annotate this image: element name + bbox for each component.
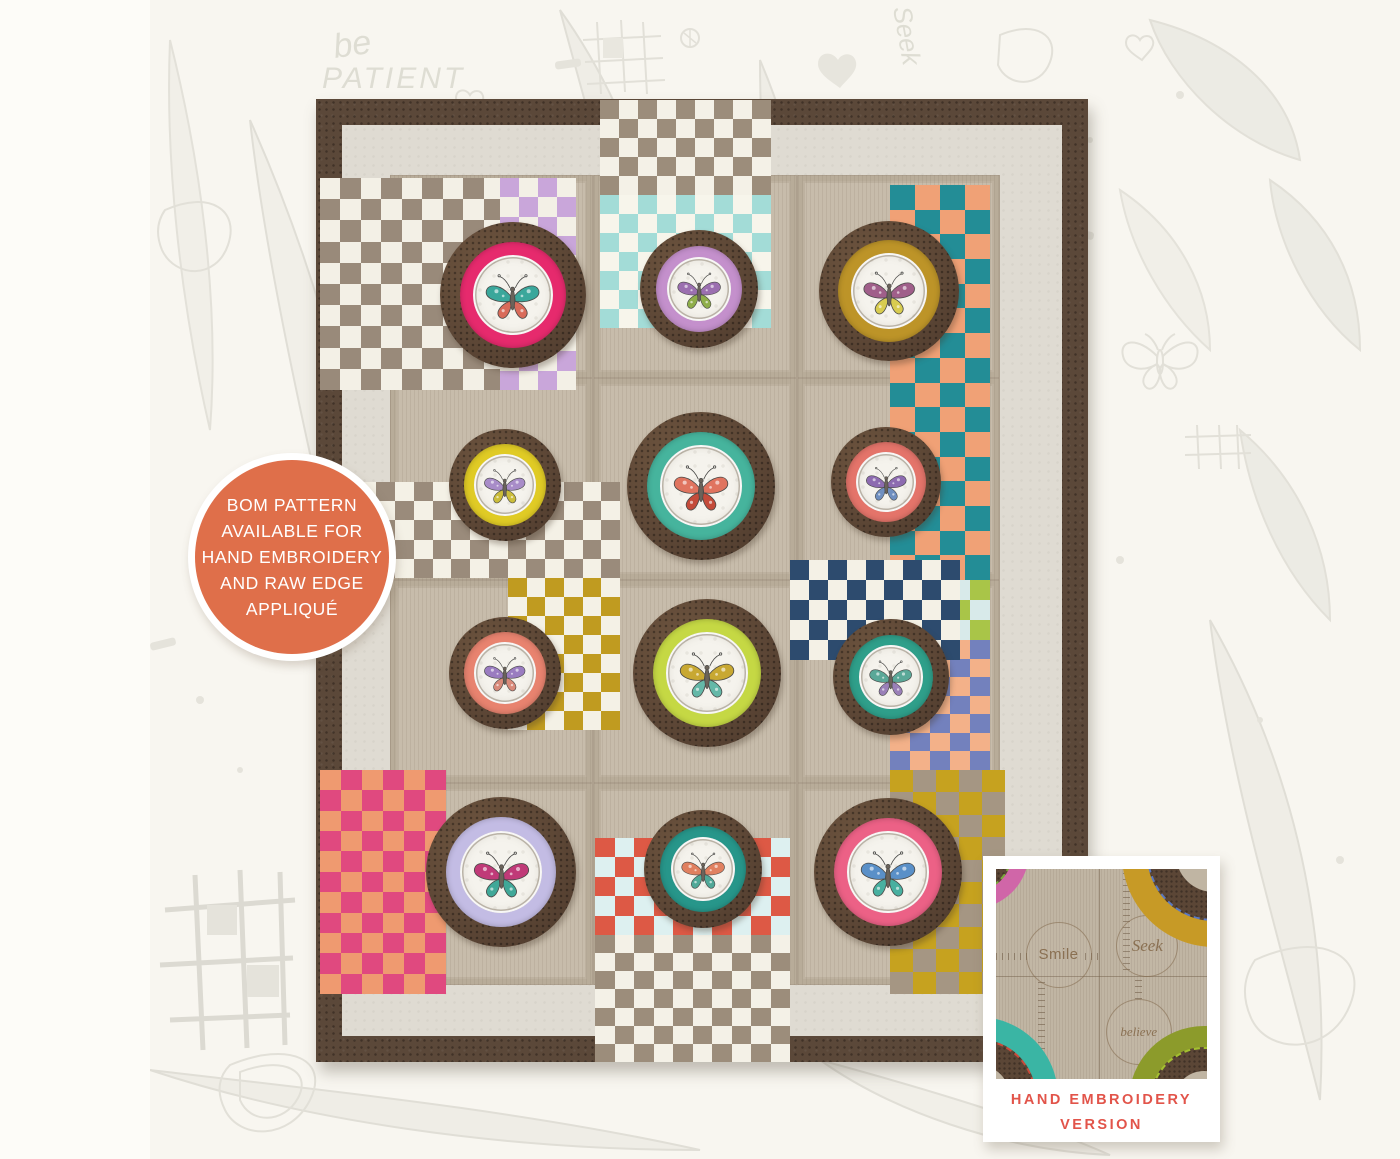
- checker-cell: [950, 659, 970, 678]
- checker-cell: [790, 560, 809, 580]
- checker-cell: [790, 620, 809, 640]
- hoop-center: [671, 837, 736, 902]
- badge-circle: BOM PATTERN AVAILABLE FOR HAND EMBROIDER…: [195, 460, 389, 654]
- checker-cell: [676, 100, 695, 119]
- checker-cell: [381, 369, 401, 390]
- checker-cell: [695, 138, 714, 157]
- checker-cell: [965, 234, 990, 259]
- checker-cell: [693, 989, 713, 1007]
- checker-cell: [557, 351, 576, 370]
- checkerboard-patch: [600, 100, 771, 195]
- checker-cell: [884, 560, 903, 580]
- checker-cell: [638, 195, 657, 214]
- checker-cell: [982, 792, 1005, 814]
- checker-cell: [320, 305, 340, 326]
- checker-cell: [941, 580, 960, 600]
- checker-cell: [545, 711, 564, 730]
- checker-cell: [712, 989, 732, 1007]
- embroidery-hoop-block: [833, 619, 949, 735]
- checker-cell: [615, 877, 635, 896]
- checker-cell: [970, 714, 990, 733]
- checker-cell: [982, 815, 1005, 837]
- hoop-fabric-ring: [464, 632, 546, 714]
- herringbone-stitch: [996, 953, 1028, 960]
- checker-cell: [732, 1026, 752, 1044]
- checker-cell: [320, 831, 341, 851]
- hoop-fabric-ring: [834, 818, 942, 926]
- checker-cell: [425, 974, 446, 994]
- checker-cell: [712, 953, 732, 971]
- checker-cell: [320, 348, 340, 369]
- checker-cell: [657, 214, 676, 233]
- checker-cell: [903, 560, 922, 580]
- seam-line: [996, 976, 1207, 977]
- checker-cell: [340, 284, 360, 305]
- checker-cell: [619, 100, 638, 119]
- checker-cell: [341, 892, 362, 912]
- checker-cell: [600, 271, 619, 290]
- checker-cell: [538, 197, 557, 216]
- checker-cell: [751, 971, 771, 989]
- left-white-strip: [0, 0, 150, 1159]
- checker-cell: [654, 953, 674, 971]
- hoop-center: [473, 255, 553, 335]
- checker-cell: [583, 578, 602, 597]
- checker-cell: [404, 811, 425, 831]
- checker-cell: [752, 157, 771, 176]
- checker-cell: [619, 157, 638, 176]
- checker-cell: [383, 790, 404, 810]
- hoop-fabric-ring: [446, 817, 556, 927]
- checker-cell: [402, 369, 422, 390]
- checker-cell: [809, 560, 828, 580]
- hand-embroidery-inset-card: Smile Seek believe HAND EMBROIDERY VERSI…: [983, 856, 1220, 1142]
- checker-cell: [340, 305, 360, 326]
- checker-cell: [771, 857, 791, 876]
- checker-cell: [940, 457, 965, 482]
- checker-cell: [828, 600, 847, 620]
- checker-cell: [619, 195, 638, 214]
- checker-cell: [601, 654, 620, 673]
- checker-cell: [673, 1044, 693, 1062]
- checker-cell: [564, 540, 583, 559]
- checker-cell: [965, 308, 990, 333]
- butterfly-icon: [857, 259, 921, 323]
- checker-cell: [402, 305, 422, 326]
- quilt-mockup: [316, 99, 1088, 1062]
- checker-cell: [422, 178, 442, 199]
- checker-cell: [601, 578, 620, 597]
- checker-cell: [771, 838, 791, 857]
- checker-cell: [913, 949, 936, 971]
- checker-cell: [673, 953, 693, 971]
- checker-cell: [936, 972, 959, 994]
- checker-cell: [965, 531, 990, 556]
- checker-cell: [340, 199, 360, 220]
- checker-cell: [404, 933, 425, 953]
- hoop-center: [660, 445, 741, 526]
- checker-cell: [615, 971, 635, 989]
- checker-cell: [615, 935, 635, 953]
- checker-cell: [470, 540, 489, 559]
- checker-cell: [422, 326, 442, 347]
- checker-cell: [771, 935, 791, 953]
- checker-cell: [320, 242, 340, 263]
- checker-cell: [402, 199, 422, 220]
- checker-cell: [634, 989, 654, 1007]
- checker-cell: [965, 555, 990, 580]
- checker-cell: [404, 790, 425, 810]
- checker-cell: [381, 199, 401, 220]
- checker-cell: [910, 733, 930, 752]
- checker-cell: [733, 195, 752, 214]
- checker-cell: [381, 284, 401, 305]
- checker-cell: [381, 178, 401, 199]
- checker-cell: [601, 501, 620, 520]
- checker-cell: [402, 348, 422, 369]
- checker-cell: [752, 176, 771, 195]
- checker-cell: [341, 770, 362, 790]
- checker-cell: [601, 616, 620, 635]
- checker-cell: [463, 178, 483, 199]
- checker-cell: [676, 195, 695, 214]
- checker-cell: [404, 872, 425, 892]
- checker-cell: [404, 892, 425, 912]
- checker-cell: [381, 263, 401, 284]
- checker-cell: [714, 195, 733, 214]
- checker-cell: [941, 600, 960, 620]
- badge-line: AVAILABLE FOR: [221, 518, 362, 544]
- checker-cell: [634, 935, 654, 953]
- checker-cell: [451, 540, 470, 559]
- checker-cell: [564, 616, 583, 635]
- checker-cell: [564, 559, 583, 578]
- butterfly-icon: [864, 650, 917, 703]
- checker-cell: [595, 953, 615, 971]
- checker-cell: [404, 851, 425, 871]
- checker-cell: [673, 1008, 693, 1026]
- feather-stitch: [1135, 978, 1142, 999]
- checker-cell: [828, 620, 847, 640]
- checker-cell: [583, 540, 602, 559]
- checker-cell: [527, 578, 546, 597]
- butterfly-icon: [479, 459, 531, 511]
- hoop-center: [666, 632, 747, 713]
- checker-cell: [557, 178, 576, 197]
- checker-cell: [970, 620, 990, 640]
- checker-cell: [619, 138, 638, 157]
- checker-cell: [752, 138, 771, 157]
- checker-cell: [381, 348, 401, 369]
- checker-cell: [383, 953, 404, 973]
- hoop-center: [851, 253, 928, 330]
- checker-cell: [615, 896, 635, 915]
- checker-cell: [950, 751, 970, 770]
- checker-cell: [657, 176, 676, 195]
- checker-cell: [341, 953, 362, 973]
- checker-cell: [970, 677, 990, 696]
- checker-cell: [564, 654, 583, 673]
- checker-cell: [395, 559, 414, 578]
- checker-cell: [489, 540, 508, 559]
- bom-pattern-badge: BOM PATTERN AVAILABLE FOR HAND EMBROIDER…: [188, 453, 396, 661]
- checker-cell: [965, 481, 990, 506]
- doodle-word-patient: PATIENT: [322, 62, 465, 95]
- checker-cell: [733, 176, 752, 195]
- checker-cell: [422, 220, 442, 241]
- checker-cell: [922, 580, 941, 600]
- butterfly-icon: [479, 261, 546, 328]
- checker-cell: [600, 176, 619, 195]
- checker-cell: [959, 882, 982, 904]
- checker-cell: [751, 1026, 771, 1044]
- checker-cell: [383, 913, 404, 933]
- checker-cell: [425, 790, 446, 810]
- checker-cell: [402, 178, 422, 199]
- checker-cell: [959, 904, 982, 926]
- checker-cell: [930, 751, 950, 770]
- checker-cell: [619, 290, 638, 309]
- checker-cell: [470, 559, 489, 578]
- embroidery-word-smile: Smile: [1026, 922, 1092, 988]
- checker-cell: [771, 1026, 791, 1044]
- checker-cell: [930, 714, 950, 733]
- checker-cell: [890, 358, 915, 383]
- checker-cell: [362, 892, 383, 912]
- embroidery-hoop-block: [440, 222, 586, 368]
- seam-line: [1099, 869, 1100, 1079]
- checker-cell: [676, 138, 695, 157]
- checker-cell: [557, 217, 576, 236]
- checker-cell: [936, 792, 959, 814]
- checker-cell: [751, 916, 771, 935]
- checker-cell: [714, 176, 733, 195]
- checker-cell: [619, 176, 638, 195]
- checker-cell: [320, 790, 341, 810]
- checker-cell: [320, 913, 341, 933]
- checker-cell: [634, 1008, 654, 1026]
- checker-cell: [634, 953, 654, 971]
- checker-cell: [595, 838, 615, 857]
- checker-cell: [463, 199, 483, 220]
- checker-cell: [340, 263, 360, 284]
- checker-cell: [910, 751, 930, 770]
- checker-cell: [673, 971, 693, 989]
- checker-cell: [922, 600, 941, 620]
- embroidery-hoop-block: [449, 429, 561, 541]
- checker-cell: [970, 733, 990, 752]
- doodle-word-be: be: [331, 23, 374, 66]
- checker-cell: [950, 677, 970, 696]
- checker-cell: [341, 851, 362, 871]
- checker-cell: [425, 770, 446, 790]
- checker-cell: [545, 616, 564, 635]
- checker-cell: [712, 935, 732, 953]
- checker-cell: [733, 100, 752, 119]
- checker-cell: [922, 560, 941, 580]
- checker-cell: [564, 711, 583, 730]
- checker-cell: [600, 214, 619, 233]
- checker-cell: [583, 559, 602, 578]
- checker-cell: [600, 195, 619, 214]
- checker-cell: [519, 371, 538, 390]
- checker-cell: [752, 100, 771, 119]
- checker-cell: [654, 1026, 674, 1044]
- butterfly-icon: [861, 457, 912, 508]
- badge-line: APPLIQUÉ: [246, 596, 338, 622]
- checker-cell: [422, 369, 442, 390]
- checker-cell: [341, 811, 362, 831]
- checker-cell: [884, 600, 903, 620]
- checker-cell: [965, 432, 990, 457]
- checker-cell: [915, 407, 940, 432]
- checker-cell: [361, 348, 381, 369]
- checker-cell: [508, 578, 527, 597]
- checker-cell: [959, 837, 982, 859]
- checker-cell: [545, 559, 564, 578]
- checker-cell: [433, 559, 452, 578]
- checker-cell: [402, 263, 422, 284]
- checker-cell: [526, 559, 545, 578]
- checker-cell: [422, 305, 442, 326]
- hand-embroidery-photo: Smile Seek believe: [996, 869, 1207, 1079]
- checker-cell: [414, 501, 433, 520]
- checker-cell: [733, 138, 752, 157]
- checker-cell: [564, 501, 583, 520]
- checker-cell: [376, 482, 395, 501]
- checker-cell: [752, 119, 771, 138]
- hoop-fabric-ring: [656, 246, 742, 332]
- checker-cell: [615, 838, 635, 857]
- checker-cell: [341, 913, 362, 933]
- checker-cell: [890, 972, 913, 994]
- checker-cell: [601, 597, 620, 616]
- checker-cell: [890, 751, 910, 770]
- checker-cell: [940, 358, 965, 383]
- checker-cell: [320, 872, 341, 892]
- checker-cell: [619, 233, 638, 252]
- hoop-center: [474, 454, 535, 515]
- hoop-center: [859, 645, 923, 709]
- checker-cell: [341, 790, 362, 810]
- checker-cell: [751, 953, 771, 971]
- checker-cell: [752, 309, 771, 328]
- checker-cell: [489, 559, 508, 578]
- checker-cell: [634, 916, 654, 935]
- checker-cell: [714, 214, 733, 233]
- checker-cell: [564, 635, 583, 654]
- checker-cell: [383, 872, 404, 892]
- checker-cell: [714, 138, 733, 157]
- checker-cell: [362, 913, 383, 933]
- checker-cell: [422, 199, 442, 220]
- checker-cell: [809, 620, 828, 640]
- checker-cell: [600, 290, 619, 309]
- checker-cell: [959, 815, 982, 837]
- checker-cell: [341, 831, 362, 851]
- inset-corner-hoop-top-left: [996, 869, 1029, 909]
- checker-cell: [601, 482, 620, 501]
- butterfly-icon: [673, 639, 741, 707]
- checker-cell: [950, 696, 970, 715]
- checker-cell: [601, 692, 620, 711]
- checker-cell: [615, 953, 635, 971]
- checker-cell: [712, 1026, 732, 1044]
- checker-cell: [752, 195, 771, 214]
- checker-cell: [395, 540, 414, 559]
- checker-cell: [601, 635, 620, 654]
- checker-cell: [965, 457, 990, 482]
- checker-cell: [361, 220, 381, 241]
- checker-cell: [940, 506, 965, 531]
- checker-cell: [557, 197, 576, 216]
- checker-cell: [965, 259, 990, 284]
- checker-cell: [654, 935, 674, 953]
- checker-cell: [940, 407, 965, 432]
- checker-cell: [619, 252, 638, 271]
- checker-cell: [564, 482, 583, 501]
- checker-cell: [940, 185, 965, 210]
- badge-line: BOM PATTERN: [227, 492, 357, 518]
- checker-cell: [950, 714, 970, 733]
- checker-cell: [600, 100, 619, 119]
- checker-cell: [615, 1026, 635, 1044]
- checker-cell: [381, 305, 401, 326]
- checker-cell: [564, 673, 583, 692]
- checker-cell: [404, 831, 425, 851]
- checker-cell: [583, 654, 602, 673]
- checker-cell: [500, 178, 519, 197]
- checker-cell: [500, 197, 519, 216]
- checker-cell: [903, 580, 922, 600]
- checker-cell: [866, 600, 885, 620]
- checker-cell: [695, 157, 714, 176]
- checker-cell: [970, 640, 990, 659]
- checker-cell: [595, 1008, 615, 1026]
- checker-cell: [676, 157, 695, 176]
- checker-cell: [790, 640, 809, 660]
- checker-cell: [526, 540, 545, 559]
- checker-cell: [941, 560, 960, 580]
- checker-cell: [425, 933, 446, 953]
- checker-cell: [564, 597, 583, 616]
- checker-cell: [583, 692, 602, 711]
- checker-cell: [638, 176, 657, 195]
- checker-cell: [751, 1008, 771, 1026]
- butterfly-icon: [672, 262, 726, 316]
- checker-cell: [771, 989, 791, 1007]
- hoop-fabric-ring: [846, 442, 926, 522]
- checker-cell: [828, 580, 847, 600]
- checker-cell: [940, 432, 965, 457]
- checkerboard-patch: [595, 935, 790, 1062]
- checker-cell: [414, 559, 433, 578]
- checker-cell: [615, 1008, 635, 1026]
- checker-cell: [595, 935, 615, 953]
- checker-cell: [615, 916, 635, 935]
- checker-cell: [695, 119, 714, 138]
- checker-cell: [595, 896, 615, 915]
- checker-cell: [695, 195, 714, 214]
- checker-cell: [936, 770, 959, 792]
- checker-cell: [583, 597, 602, 616]
- checker-cell: [595, 1044, 615, 1062]
- checker-cell: [732, 989, 752, 1007]
- checker-cell: [361, 199, 381, 220]
- corner-hoop-wood-ring: [1147, 869, 1207, 921]
- checker-cell: [595, 857, 615, 876]
- checker-cell: [340, 369, 360, 390]
